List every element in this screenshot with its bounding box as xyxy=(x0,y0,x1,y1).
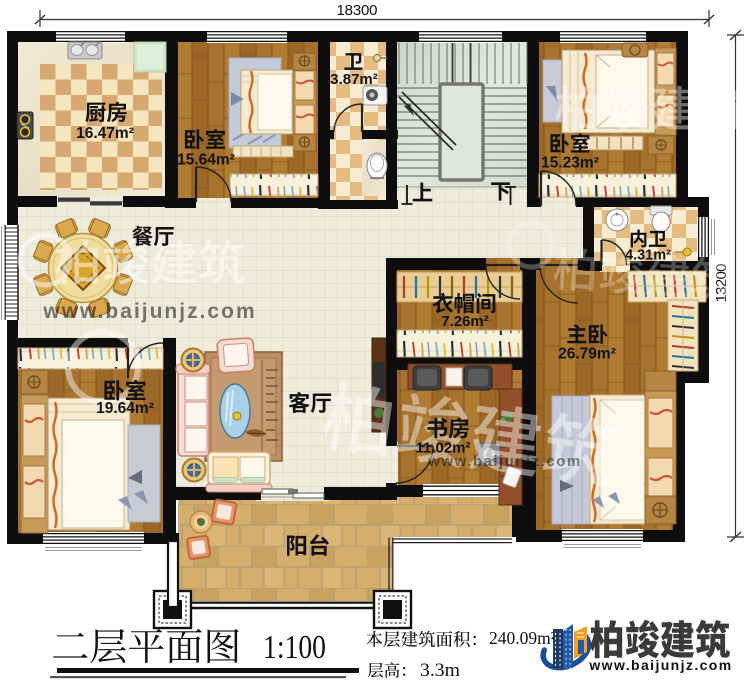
svg-text:www.baijunjz.com: www.baijunjz.com xyxy=(588,657,732,673)
svg-text:18300: 18300 xyxy=(337,2,378,19)
svg-text:16.47m²: 16.47m² xyxy=(76,125,134,142)
svg-text:19.64m²: 19.64m² xyxy=(96,400,154,417)
svg-text:15.23m²: 15.23m² xyxy=(541,155,599,172)
svg-text:1:100: 1:100 xyxy=(263,629,326,666)
svg-text:26.79m²: 26.79m² xyxy=(558,346,616,363)
svg-text:www.baijunjz.com: www.baijunjz.com xyxy=(42,300,256,323)
svg-text:7.26m²: 7.26m² xyxy=(441,313,489,330)
svg-text:15.64m²: 15.64m² xyxy=(177,152,235,169)
svg-text:3.3m: 3.3m xyxy=(420,660,460,681)
svg-text:240.09m²: 240.09m² xyxy=(489,628,556,648)
svg-text:11.02m²: 11.02m² xyxy=(415,440,470,457)
svg-text:4.31m²: 4.31m² xyxy=(625,248,671,264)
svg-text:3.87m²: 3.87m² xyxy=(330,71,378,88)
